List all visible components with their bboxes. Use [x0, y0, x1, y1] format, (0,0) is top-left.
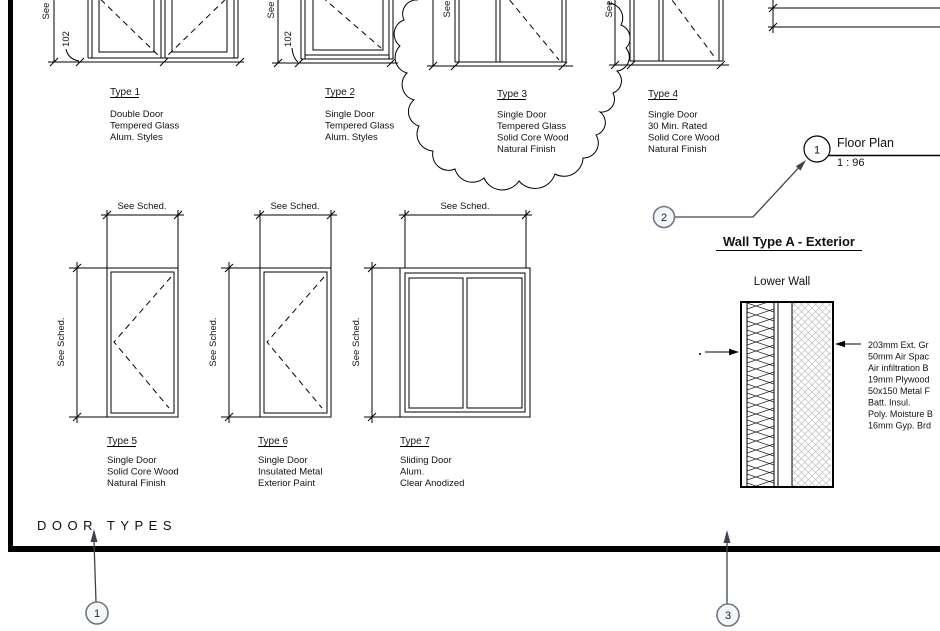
type7-desc-2: Alum. [400, 467, 424, 478]
type6-dim-width: See Sched. [270, 201, 319, 212]
wall-note-7: Poly. Moisture B [868, 409, 933, 419]
type7-dim-height: See Sched. [351, 317, 362, 366]
type6-desc-2: Insulated Metal [258, 467, 322, 478]
type6-desc-1: Single Door [258, 455, 308, 466]
view-title: Floor Plan [837, 136, 894, 150]
type4-linework [609, 0, 729, 65]
type6-label-block: Type 6 Single Door Insulated Metal Exter… [258, 436, 322, 489]
type1-glass-left [99, 0, 154, 52]
type5-dim-ticks [73, 211, 182, 421]
right-arrowhead-icon [835, 341, 845, 347]
type6-dim-lines [221, 210, 337, 423]
wall-note-6: Batt. Insul. [868, 398, 911, 408]
type3-desc-3: Solid Core Wood [497, 133, 569, 144]
type6-elevation: See Sched. See Sched. [208, 201, 337, 423]
callout-2-leader [675, 168, 798, 217]
type2-glass [313, 0, 383, 50]
type5-desc-2: Solid Core Wood [107, 467, 179, 478]
type1-swing-dashes [93, 0, 233, 56]
type5-desc-1: Single Door [107, 455, 157, 466]
type1-dim-102: 102 [61, 31, 72, 47]
wall-type-heading-block: Wall Type A - Exterior Lower Wall [716, 234, 862, 288]
type1-desc-3: Alum. Styles [110, 132, 163, 143]
wall-note-3: Air infiltration B [868, 363, 929, 373]
type4-desc-1: Single Door [648, 110, 698, 121]
wall-note-2: 50mm Air Spac [868, 352, 930, 362]
wall-note-8: 16mm Gyp. Brd [868, 421, 931, 431]
type2-desc-2: Tempered Glass [325, 121, 394, 132]
type3-swing-dash [503, 0, 559, 60]
drawing-sheet: See 102 See 102 See See Type 1 Double Do… [0, 0, 940, 631]
view-number: 1 [814, 145, 820, 157]
type4-label-block: Type 4 Single Door 30 Min. Rated Solid C… [648, 89, 720, 155]
type3-desc-2: Tempered Glass [497, 121, 566, 132]
lower-wall-label: Lower Wall [754, 276, 810, 288]
type5-label-block: Type 5 Single Door Solid Core Wood Natur… [107, 436, 179, 489]
type7-elevation: See Sched. See Sched. [351, 201, 532, 423]
type5-elevation: See Sched. See Sched. [56, 201, 184, 423]
type5-dim-width: See Sched. [117, 201, 166, 212]
wall-type-heading: Wall Type A - Exterior [723, 234, 855, 249]
batt-insulation-hatch [747, 303, 774, 486]
type1-desc-1: Double Door [110, 109, 163, 120]
view-scale: 1 : 96 [837, 157, 865, 169]
type2-dim-102: 102 [283, 31, 294, 47]
crosshatch-layer [792, 303, 831, 487]
type7-panel-left [409, 278, 463, 408]
type2-swing-dash [314, 0, 381, 48]
floor-plan-fragment-lines [768, 0, 940, 33]
door-types-drawing: See 102 See 102 See See Type 1 Double Do… [0, 0, 940, 631]
wall-note-1: 203mm Ext. Gr [868, 340, 929, 350]
callout-1-number: 1 [94, 608, 100, 620]
type4-label: Type 4 [648, 89, 678, 100]
type5-door-inner [111, 272, 174, 413]
type1-label-block: Type 1 Double Door Tempered Glass Alum. … [110, 87, 179, 143]
callout-3: 3 [717, 530, 739, 626]
sheet-border-left [8, 0, 13, 552]
callout-2: 2 [654, 160, 807, 228]
type4-swing-dash [666, 0, 716, 59]
type3-label: Type 3 [497, 89, 527, 100]
wall-section-detail: 203mm Ext. Gr 50mm Air Spac Air infiltra… [699, 302, 933, 487]
type5-label: Type 5 [107, 436, 137, 447]
wall-note-4: 19mm Plywood [868, 375, 930, 385]
type6-dim-ticks [225, 211, 335, 421]
type7-dim-width: See Sched. [440, 201, 489, 212]
floor-plan-view-title: 1 Floor Plan 1 : 96 [804, 136, 940, 169]
floor-plan-fragment [768, 0, 940, 33]
stray-dot [699, 353, 701, 355]
callout-3-arrowhead-icon [724, 530, 731, 543]
type6-door-outer [260, 268, 331, 417]
type7-label: Type 7 [400, 436, 430, 447]
type6-swing-dashes [267, 277, 324, 408]
type6-dim-height: See Sched. [208, 317, 219, 366]
type1-label: Type 1 [110, 87, 140, 98]
type5-desc-3: Natural Finish [107, 478, 166, 489]
type4-desc-2: 30 Min. Rated [648, 121, 707, 132]
type5-dim-height: See Sched. [56, 317, 67, 366]
type1-glass-right [172, 0, 227, 52]
type3-label-block: Type 3 Single Door Tempered Glass Solid … [497, 89, 569, 155]
type3-dim-see: See [442, 1, 453, 18]
type5-dim-lines [69, 210, 184, 423]
type4-desc-4: Natural Finish [648, 144, 707, 155]
type7-door-inner [405, 273, 525, 412]
callout-3-number: 3 [725, 610, 731, 622]
type7-label-block: Type 7 Sliding Door Alum. Clear Anodized [400, 436, 464, 489]
type3-desc-4: Natural Finish [497, 144, 556, 155]
type7-dim-lines [364, 210, 532, 423]
type2-desc-3: Alum. Styles [325, 132, 378, 143]
type7-desc-3: Clear Anodized [400, 478, 464, 489]
left-arrowhead-icon [729, 349, 739, 355]
type3-elevation: See [427, 0, 573, 70]
type1-dim-see: See [41, 3, 52, 20]
type2-desc-1: Single Door [325, 109, 375, 120]
type6-door-inner [264, 272, 327, 413]
type2-elevation: See 102 [266, 0, 398, 67]
type7-door-outer [400, 268, 530, 417]
callout-1: 1 [86, 529, 108, 624]
type6-label: Type 6 [258, 436, 288, 447]
type1-elevation: See 102 [41, 0, 244, 66]
sheet-title: DOOR TYPES [37, 518, 177, 533]
type6-desc-3: Exterior Paint [258, 478, 315, 489]
type7-panel-right [467, 278, 522, 408]
callout-2-number: 2 [661, 212, 667, 224]
wall-note-5: 50x150 Metal F [868, 386, 931, 396]
type4-elevation: See [604, 0, 729, 69]
type2-dim-see: See [266, 2, 277, 19]
type4-desc-3: Solid Core Wood [648, 133, 720, 144]
type5-door-outer [107, 268, 178, 417]
type7-dim-ticks [368, 211, 530, 421]
type5-swing-dashes [114, 277, 171, 408]
type3-desc-1: Single Door [497, 110, 547, 121]
type7-desc-1: Sliding Door [400, 455, 452, 466]
type2-label: Type 2 [325, 87, 355, 98]
sheet-border-bottom [8, 546, 940, 552]
type1-desc-2: Tempered Glass [110, 121, 179, 132]
type2-label-block: Type 2 Single Door Tempered Glass Alum. … [325, 87, 394, 143]
